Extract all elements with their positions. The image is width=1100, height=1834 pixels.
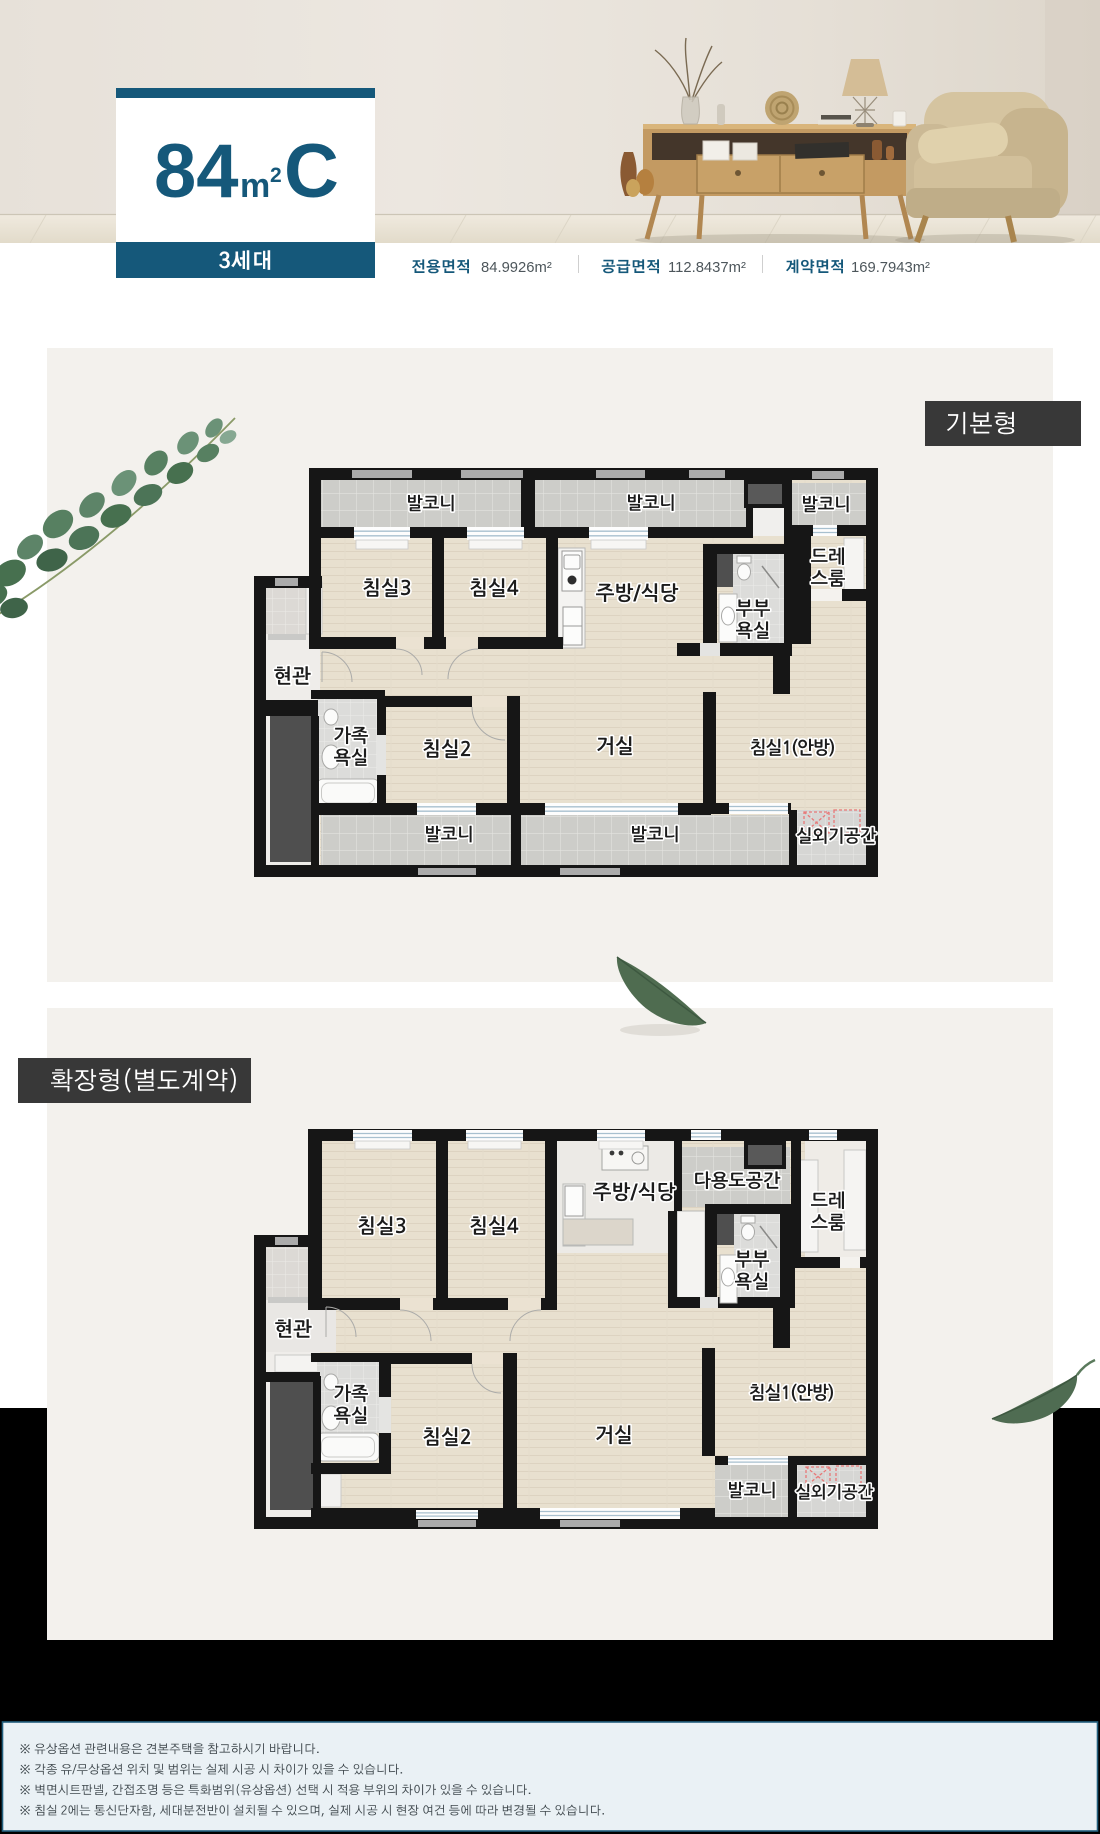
svg-text:C: C: [284, 129, 339, 214]
svg-text:84: 84: [154, 129, 239, 214]
svg-text:112.8437m²: 112.8437m²: [668, 260, 746, 276]
svg-text:84.9926m²: 84.9926m²: [481, 260, 552, 276]
svg-text:2: 2: [270, 164, 282, 187]
svg-text:169.7943m²: 169.7943m²: [851, 260, 930, 276]
svg-text:m: m: [240, 167, 270, 205]
